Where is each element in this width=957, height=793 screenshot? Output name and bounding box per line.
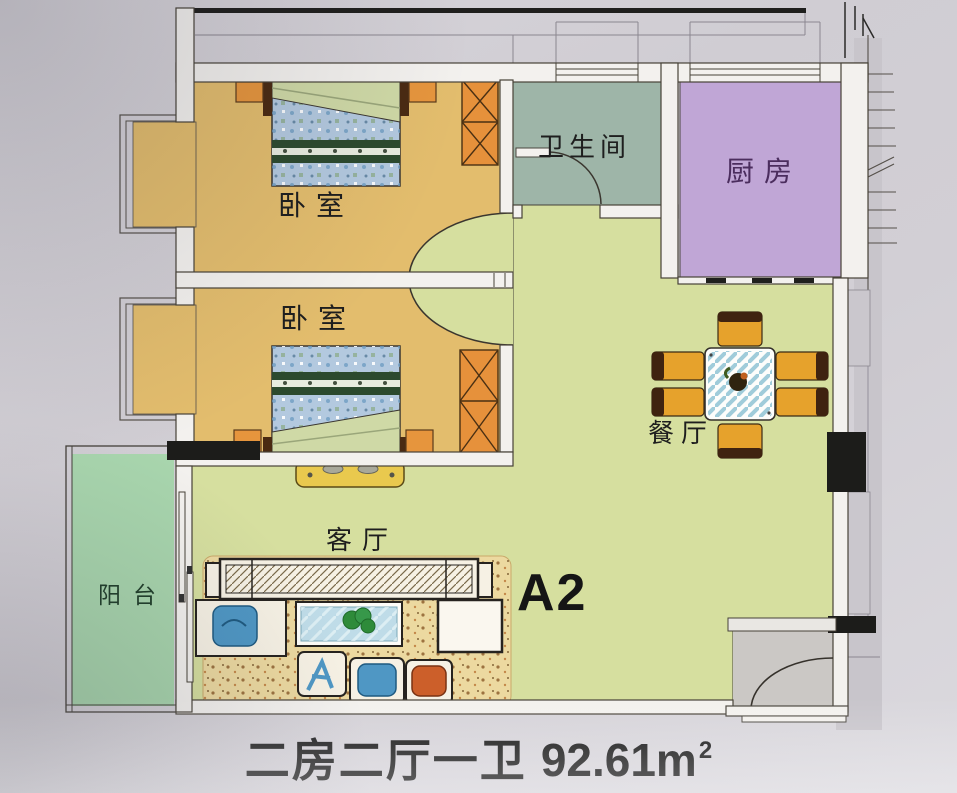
- floor-plan-photo: 卧室 卧室 卫生间 厨房 餐厅 客厅 阳台 A2 二房二厅一卫92.61m2: [0, 0, 957, 793]
- bathroom-label: 卫生间: [538, 134, 631, 160]
- bedroom-bottom-label: 卧室: [280, 305, 356, 333]
- right-wall: [833, 278, 848, 712]
- left-wall: [176, 8, 194, 122]
- nightstand-icon: [236, 82, 263, 102]
- kitchen-door-dashes: [706, 278, 814, 283]
- bottom-wall: [176, 700, 733, 714]
- floor-plan-drawing: [0, 0, 957, 793]
- top-wall: [176, 63, 868, 82]
- balcony-label: 阳台: [98, 584, 168, 607]
- floor-cushions-icon: [298, 652, 452, 704]
- side-table-icon: [438, 600, 502, 652]
- caption-layout: 二房二厅一卫: [245, 735, 527, 786]
- dining-table-icon: [705, 348, 775, 420]
- exterior-ledge: [848, 290, 870, 366]
- kitchen-label: 厨房: [726, 158, 802, 186]
- nightstand-icon: [406, 430, 433, 453]
- wardrobe-bottom-icon: [460, 350, 498, 453]
- shear-wall: [167, 441, 260, 460]
- living-label: 客厅: [326, 527, 398, 553]
- unit-label: A2: [517, 563, 587, 623]
- coffee-table-icon: [296, 602, 402, 646]
- wardrobe-top-icon: [462, 80, 498, 165]
- dining-label: 餐厅: [648, 420, 714, 446]
- armchair-icon: [196, 600, 286, 656]
- nightstand-icon: [409, 82, 436, 102]
- inter-bedroom-wall: [176, 272, 513, 288]
- kitchen-right-wall: [841, 63, 868, 278]
- entry-foyer-floor: [733, 630, 836, 712]
- caption: 二房二厅一卫92.61m2: [0, 724, 957, 789]
- caption-area: 92.61m: [541, 734, 697, 786]
- sofa-set-icon: [196, 556, 511, 706]
- exterior-ledge: [848, 492, 870, 614]
- bathroom-kitchen-wall: [661, 63, 678, 278]
- balcony-floor: [72, 454, 174, 706]
- top-outer-wall: [176, 8, 806, 13]
- sofa-icon: [206, 559, 492, 599]
- column: [827, 432, 866, 492]
- bedroom-top-label: 卧室: [278, 192, 354, 220]
- caption-area-superscript: 2: [699, 737, 712, 764]
